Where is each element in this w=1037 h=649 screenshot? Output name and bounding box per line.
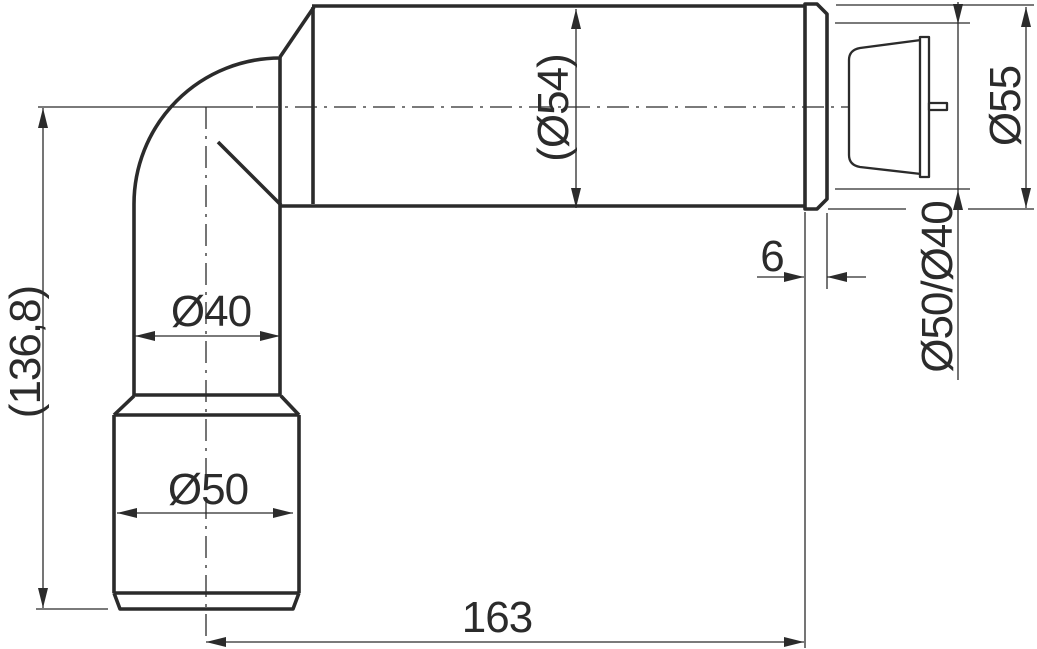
gasket-pin: [929, 103, 947, 110]
dim-label-gasket-diameters: Ø50/Ø40: [913, 201, 962, 373]
dim-label-overall-length: 163: [462, 593, 532, 642]
gasket-body: [849, 40, 921, 174]
dim-label-socket-diameter: Ø50: [168, 465, 248, 514]
dim-label-collar-thickness: 6: [760, 232, 783, 281]
technical-drawing: (136,8) Ø40 Ø50 (Ø54) 163 6 Ø50/Ø40 Ø55: [0, 0, 1037, 649]
dim-label-pipe-diameter: Ø40: [171, 287, 251, 336]
dim-label-collar-diameter: Ø55: [981, 66, 1030, 146]
dim-label-overall-height: (136,8): [1, 286, 50, 418]
drawing-canvas: (136,8) Ø40 Ø50 (Ø54) 163 6 Ø50/Ø40 Ø55: [0, 0, 1037, 649]
dim-label-sleeve-diameter: (Ø54): [529, 54, 578, 161]
gasket-plate: [920, 37, 929, 177]
